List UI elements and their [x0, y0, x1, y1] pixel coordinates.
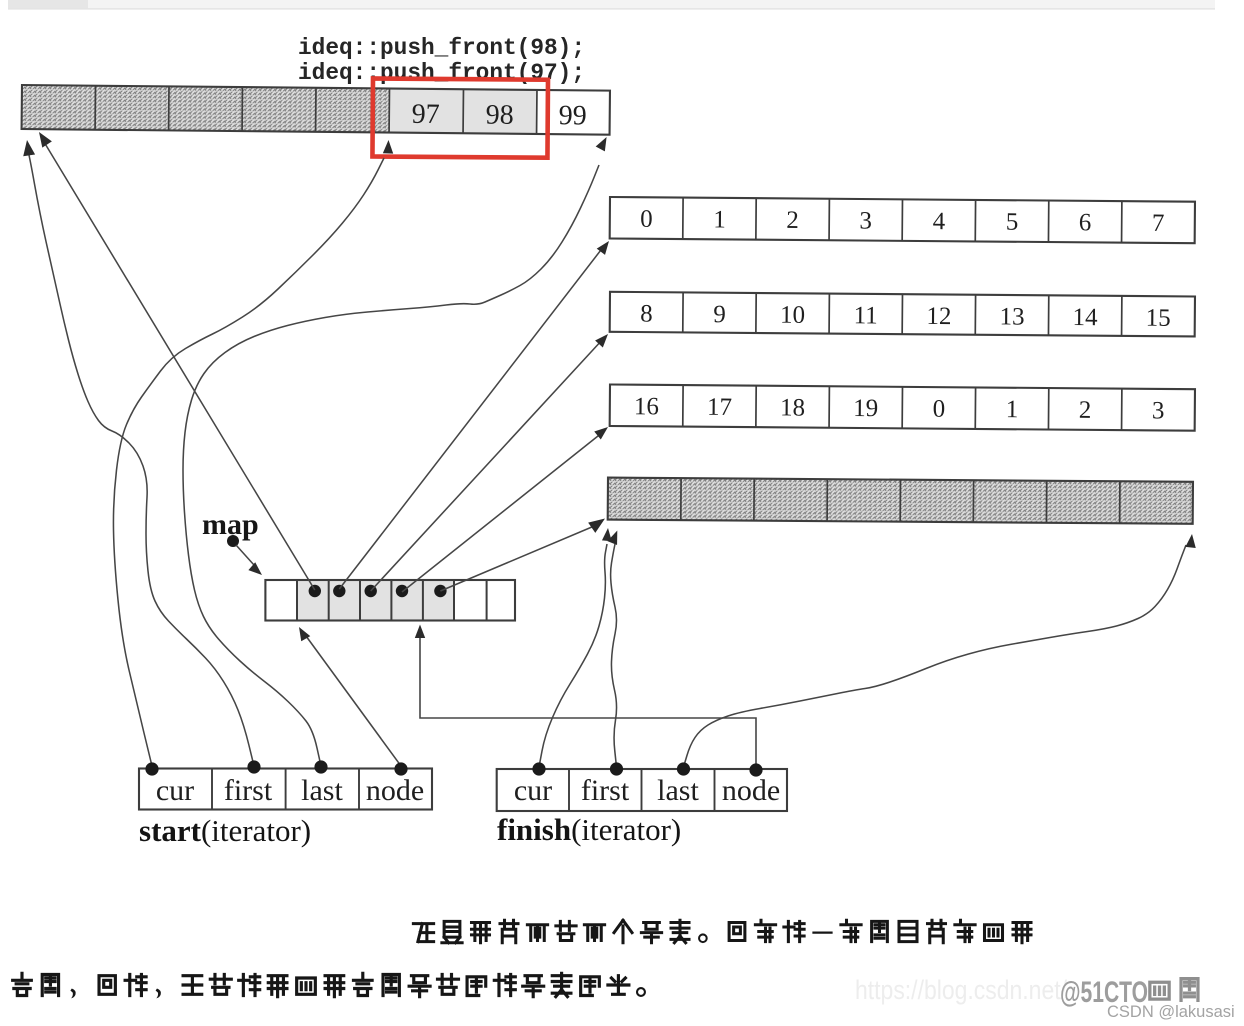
svg-text:ideq::push_front(97);: ideq::push_front(97);: [298, 60, 585, 86]
svg-text:11: 11: [854, 302, 878, 329]
svg-text:10: 10: [780, 302, 805, 329]
svg-text:12: 12: [926, 303, 951, 330]
svg-text:16: 16: [634, 393, 659, 420]
svg-text:13: 13: [999, 303, 1024, 330]
svg-text:0: 0: [933, 396, 946, 423]
svg-text:7: 7: [1152, 210, 1165, 237]
svg-text:5: 5: [1006, 209, 1019, 236]
svg-text:CSDN @lakusasi: CSDN @lakusasi: [1107, 1003, 1235, 1021]
svg-text:last: last: [301, 774, 343, 807]
svg-text:98: 98: [486, 99, 514, 130]
svg-text:finish(iterator): finish(iterator): [497, 812, 681, 847]
svg-text:cur: cur: [156, 774, 194, 807]
svg-text:99: 99: [559, 100, 587, 131]
svg-text:ideq::push_front(98);: ideq::push_front(98);: [298, 35, 585, 61]
svg-text:2: 2: [1079, 397, 1092, 424]
svg-text:first: first: [224, 774, 273, 807]
svg-text:97: 97: [412, 99, 440, 130]
svg-text:first: first: [581, 774, 630, 807]
svg-text:18: 18: [780, 394, 805, 421]
svg-text:9: 9: [713, 301, 726, 328]
svg-text:1: 1: [1006, 396, 1019, 423]
svg-text:cur: cur: [514, 774, 552, 807]
svg-text:17: 17: [707, 394, 732, 421]
svg-text:start(iterator): start(iterator): [139, 813, 311, 848]
svg-text:1: 1: [713, 206, 726, 233]
svg-text:15: 15: [1146, 305, 1171, 332]
svg-text:3: 3: [1152, 397, 1165, 424]
svg-text:6: 6: [1079, 209, 1092, 236]
svg-text:0: 0: [640, 206, 653, 233]
svg-text:3: 3: [859, 208, 872, 235]
svg-text:node: node: [722, 774, 780, 807]
svg-text:https://blog.csdn.net/: https://blog.csdn.net/: [855, 975, 1067, 1005]
svg-text:2: 2: [786, 207, 799, 234]
svg-text:4: 4: [933, 208, 946, 235]
svg-text:node: node: [366, 774, 424, 807]
svg-text:8: 8: [640, 301, 653, 328]
svg-text:14: 14: [1073, 304, 1099, 331]
svg-text:19: 19: [853, 395, 878, 422]
svg-text:last: last: [657, 774, 699, 807]
